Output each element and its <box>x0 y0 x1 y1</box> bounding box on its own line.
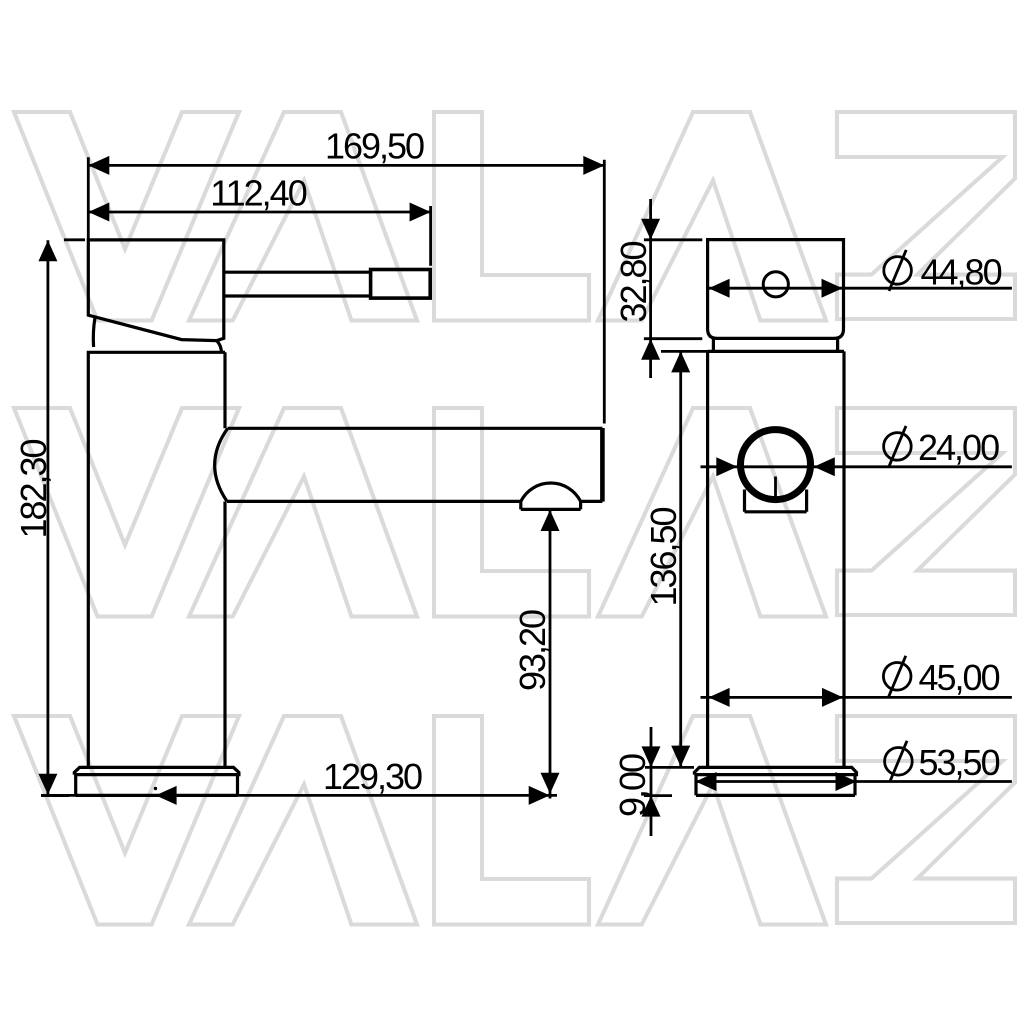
svg-text:136,50: 136,50 <box>643 507 684 606</box>
svg-text:182,30: 182,30 <box>13 439 54 538</box>
svg-text:24,00: 24,00 <box>918 427 999 468</box>
svg-text:44,80: 44,80 <box>921 252 1002 293</box>
svg-text:45,00: 45,00 <box>919 657 1000 698</box>
svg-text:53,50: 53,50 <box>919 742 1000 783</box>
svg-text:93,20: 93,20 <box>512 610 553 691</box>
svg-text:129,30: 129,30 <box>323 756 422 797</box>
svg-text:112,40: 112,40 <box>210 173 306 214</box>
svg-text:9,00: 9,00 <box>612 754 653 817</box>
svg-text:169,50: 169,50 <box>325 126 424 167</box>
svg-text:32,80: 32,80 <box>613 241 654 322</box>
